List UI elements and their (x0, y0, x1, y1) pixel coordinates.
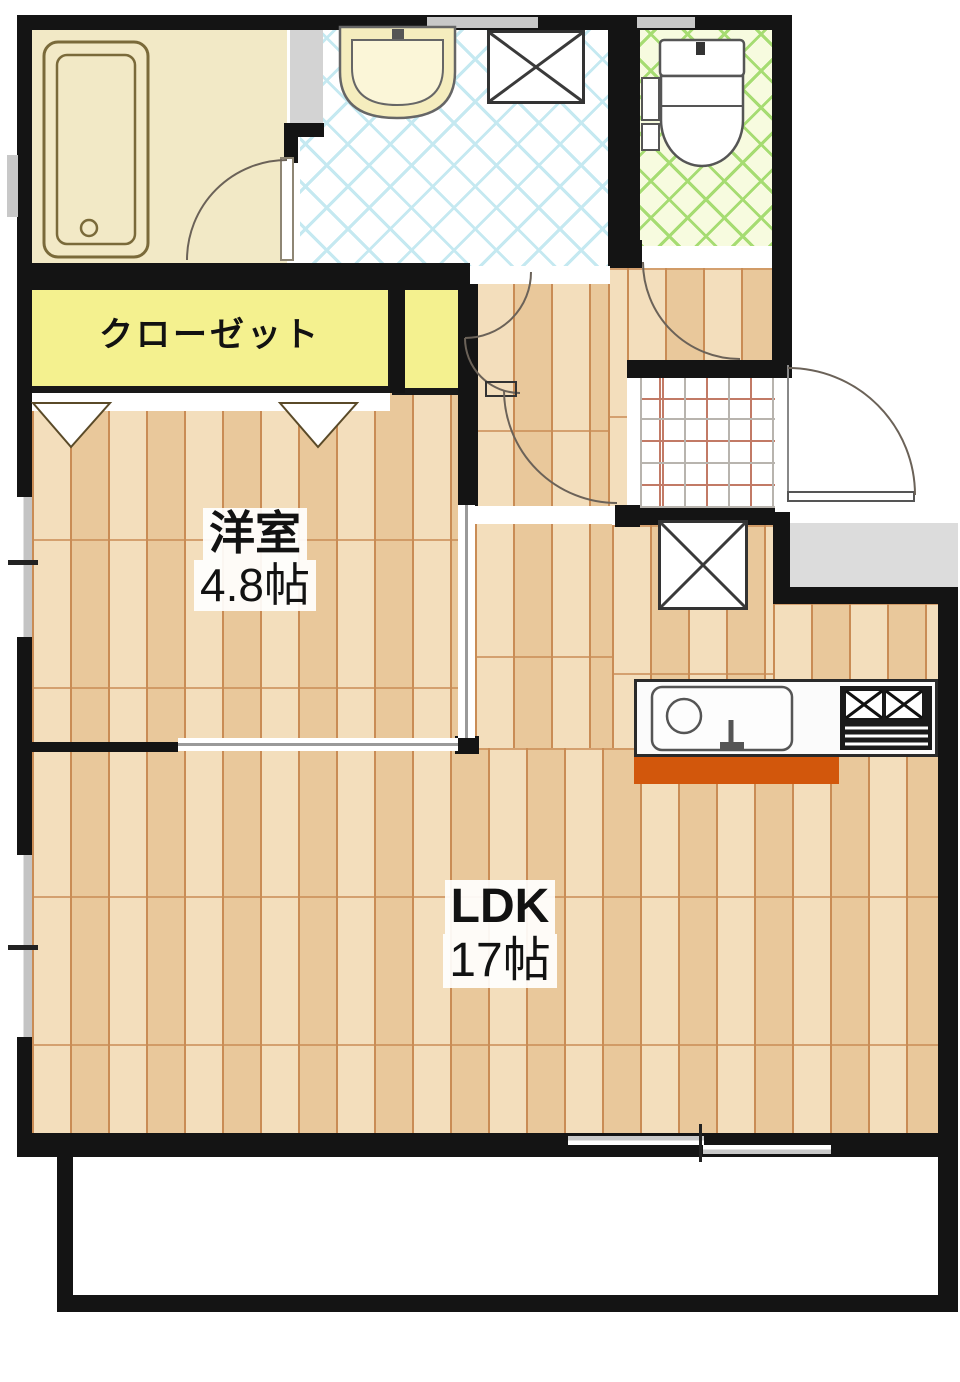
wall (20, 742, 178, 752)
wall (458, 276, 478, 506)
wall (938, 590, 958, 1157)
ldk-size: 17帖 (443, 934, 556, 988)
entry-porch (788, 523, 958, 587)
hallway-floor (608, 268, 627, 508)
window-tick (8, 560, 38, 565)
wall (938, 1157, 958, 1312)
wall (772, 15, 792, 378)
wall (773, 587, 958, 604)
wall (284, 137, 298, 163)
western-room-name: 洋室 (203, 508, 307, 560)
wall (627, 360, 772, 378)
window-tick (8, 945, 38, 950)
window (637, 17, 695, 28)
kitchen-base (634, 757, 839, 784)
hallway-floor (627, 268, 772, 360)
wall (773, 512, 790, 603)
western-room-size: 4.8帖 (194, 560, 316, 612)
wall (612, 240, 642, 268)
floor-plan: クローゼット 洋室 4.8帖 LDK 17帖 (0, 0, 960, 1382)
toilet-threshold (642, 246, 768, 261)
washroom-threshold (470, 266, 610, 284)
wall (57, 1143, 73, 1311)
wall (284, 123, 324, 137)
balcony-sliding-window (703, 1145, 831, 1154)
western-room-label: 洋室 4.8帖 (150, 508, 360, 611)
wall (455, 736, 479, 754)
sliding-partition-vertical (458, 505, 475, 738)
ldk-name: LDK (445, 880, 556, 934)
closet-label: クローゼット (40, 316, 380, 355)
closet-label-text: クローゼット (93, 316, 327, 355)
pipe-space (290, 25, 323, 125)
window-tick (699, 1124, 702, 1162)
closet-door-track (32, 393, 390, 411)
bathroom-floor (32, 30, 287, 263)
balcony (73, 1157, 938, 1295)
wall (608, 15, 640, 268)
window (427, 17, 538, 28)
sliding-partition-horizontal (178, 738, 458, 751)
ldk-label: LDK 17帖 (400, 880, 600, 988)
toilet-floor (640, 27, 772, 246)
hall-ldk-threshold (475, 506, 615, 524)
hallway-floor (475, 282, 612, 508)
gas-stove (840, 686, 932, 750)
wall (390, 278, 405, 393)
balcony-sliding-window (568, 1136, 704, 1145)
wall (615, 505, 640, 527)
entry-door (788, 365, 915, 501)
ldk-floor (475, 508, 612, 748)
entrance-tile (640, 378, 775, 508)
window (7, 155, 18, 217)
washing-machine-pan (487, 30, 585, 104)
refrigerator-space (658, 520, 748, 610)
wall (57, 1295, 943, 1312)
window (15, 497, 32, 637)
